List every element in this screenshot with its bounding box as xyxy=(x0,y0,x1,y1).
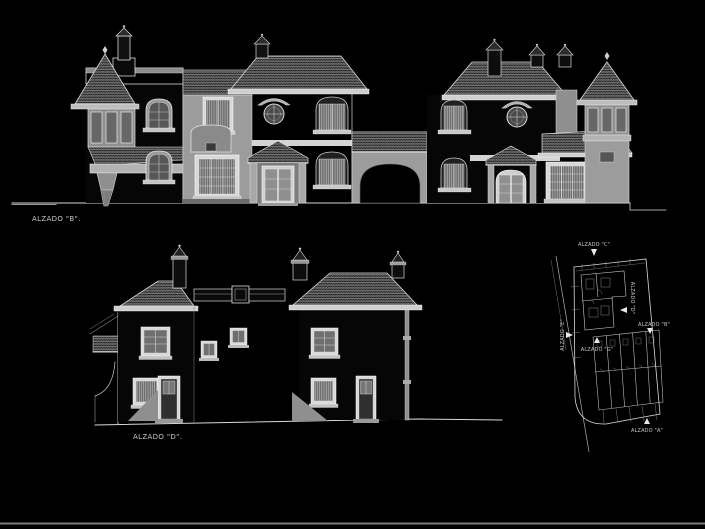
site-label-g: ALZADO "G" xyxy=(581,347,613,353)
back-door xyxy=(353,376,379,423)
chimney xyxy=(486,39,503,76)
plot-dividers xyxy=(571,259,657,424)
site-label-b: ALZADO "B" xyxy=(638,322,670,328)
parapet-link xyxy=(194,286,285,303)
elevation-d-label: ALZADO "D". xyxy=(133,433,182,441)
chimney xyxy=(390,251,406,278)
large-window xyxy=(544,162,590,203)
chimney xyxy=(557,44,573,67)
arrow-d xyxy=(620,307,627,313)
main-roof xyxy=(444,62,566,95)
site-label-a: ALZADO "A" xyxy=(631,428,663,434)
shuttered-window xyxy=(309,328,340,359)
chimney xyxy=(254,34,270,58)
chimney xyxy=(529,44,545,67)
elevation-b-drawing: ALZADO "B". xyxy=(12,25,666,223)
right-house xyxy=(427,39,637,203)
right-house xyxy=(289,248,422,423)
arched-shuttered-window-lower xyxy=(313,152,351,189)
elevation-b-label: ALZADO "B". xyxy=(32,215,81,223)
left-house xyxy=(114,245,198,423)
site-plan: ALZADO "C" ALZADO "B" ALZADO "A" ALZADO … xyxy=(551,242,670,452)
main-roof xyxy=(231,56,367,89)
site-label-e: ALZADO "E" xyxy=(560,319,566,351)
plot-boundary xyxy=(574,259,660,424)
left-house xyxy=(71,25,369,206)
arrow-g xyxy=(594,337,600,343)
elevation-d-drawing: ALZADO "D". xyxy=(90,245,502,441)
stair-tower xyxy=(556,90,577,137)
chimney xyxy=(291,248,309,280)
large-window xyxy=(193,155,241,200)
turret xyxy=(577,52,637,203)
arched-shuttered-window-upper xyxy=(313,97,351,134)
round-window xyxy=(258,99,290,125)
cad-viewport[interactable]: ALZADO "B". xyxy=(0,0,705,529)
site-label-d: ALZADO "D" xyxy=(629,282,635,314)
archway xyxy=(352,132,427,203)
adjacent-structure xyxy=(90,312,118,424)
arrow-a xyxy=(644,418,650,424)
site-label-c: ALZADO "C" xyxy=(578,242,610,248)
detached-block xyxy=(581,271,626,330)
cad-drawing: ALZADO "B". xyxy=(0,0,705,529)
back-door xyxy=(155,376,183,423)
arched-window-upper xyxy=(143,99,175,132)
arched-window-lower xyxy=(143,151,175,184)
window-bottom-edge xyxy=(0,523,705,525)
chimney xyxy=(171,245,188,288)
arch-opening xyxy=(360,164,420,203)
arrow-c xyxy=(591,249,597,256)
road-edge xyxy=(556,256,589,452)
terraced-units xyxy=(593,330,663,410)
mid-window-right xyxy=(228,328,249,348)
lattice-window xyxy=(309,378,338,408)
floor-band xyxy=(252,140,352,146)
chimney xyxy=(113,25,135,76)
shuttered-window xyxy=(139,327,172,360)
mid-window-left xyxy=(199,341,219,361)
entrance-porch xyxy=(248,141,308,206)
